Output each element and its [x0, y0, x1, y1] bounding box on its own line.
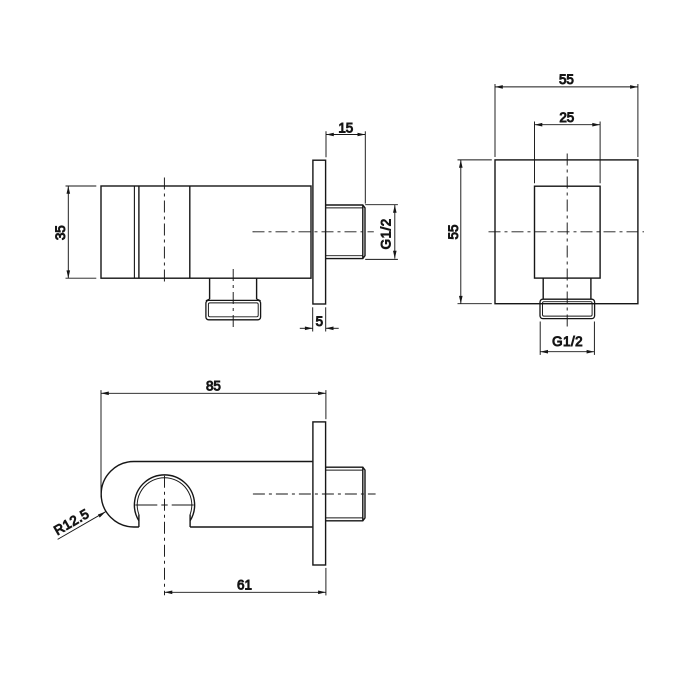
svg-text:55: 55	[446, 225, 461, 240]
svg-text:5: 5	[316, 314, 323, 329]
svg-text:G1/2: G1/2	[378, 218, 393, 249]
svg-text:35: 35	[53, 225, 68, 240]
svg-text:G1/2: G1/2	[552, 334, 583, 349]
svg-text:15: 15	[338, 120, 353, 135]
svg-text:85: 85	[206, 379, 221, 394]
svg-text:61: 61	[237, 577, 252, 592]
svg-text:25: 25	[559, 110, 574, 125]
svg-text:55: 55	[559, 72, 574, 87]
